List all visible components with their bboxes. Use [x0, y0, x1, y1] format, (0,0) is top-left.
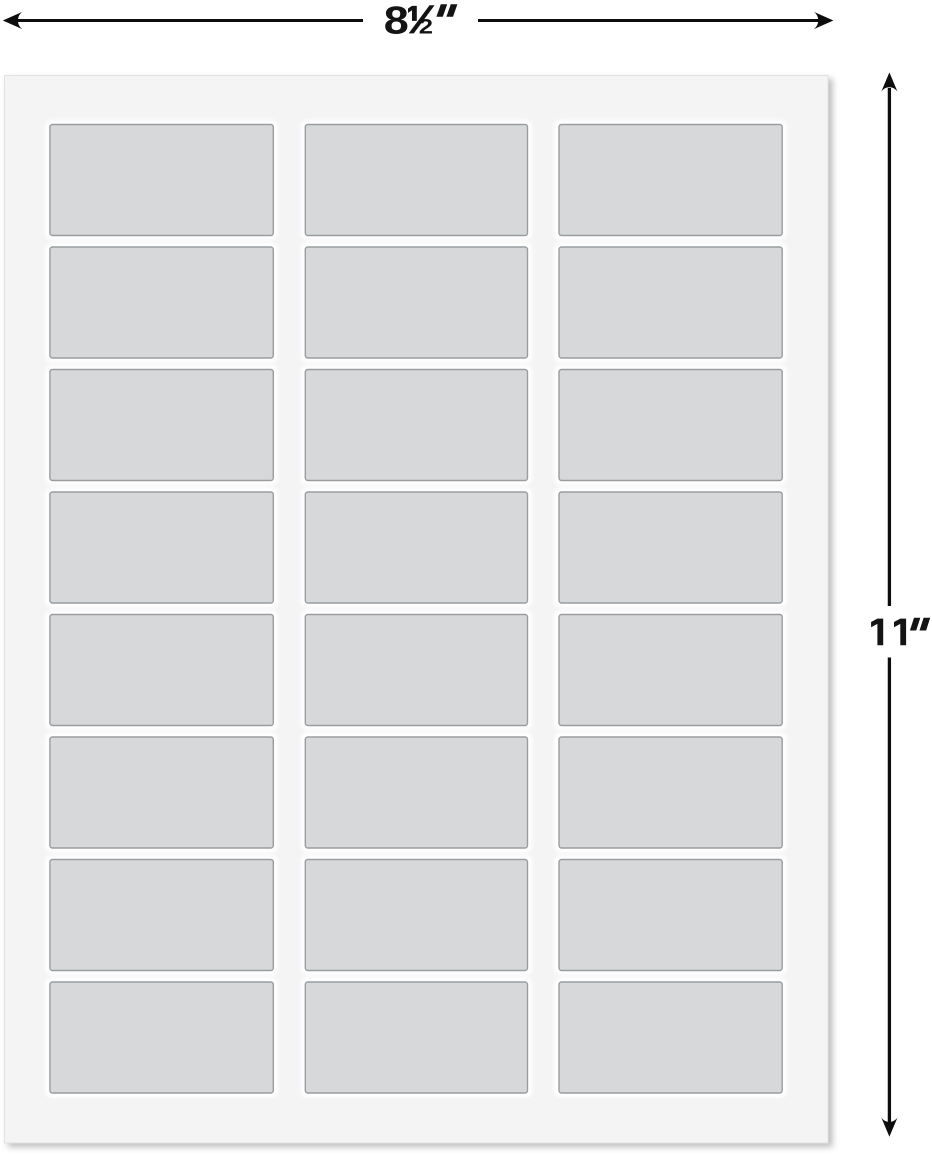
- svg-text:8: 8: [384, 0, 409, 42]
- svg-text:2: 2: [419, 15, 433, 39]
